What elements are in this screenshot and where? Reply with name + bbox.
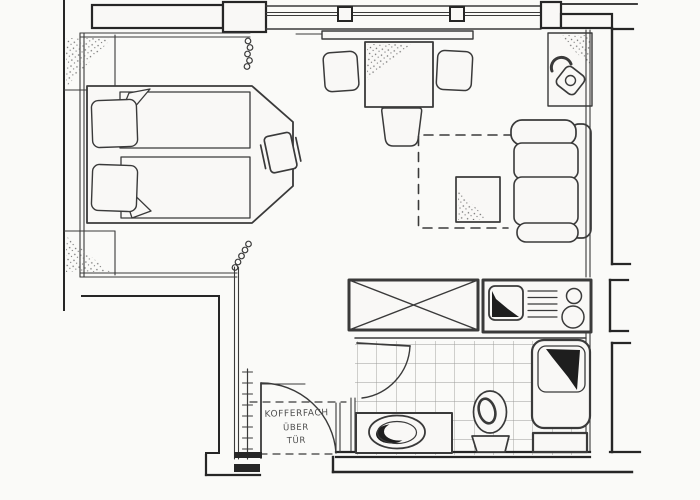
floor-plan: KOFFERFACH ÜBER TÜR [0,0,700,500]
stove-burner-large [562,306,584,328]
shower-mat [533,433,587,452]
door-label-line-3: TÜR [286,435,306,447]
bathroom [336,332,590,457]
pillow-bottom [91,164,138,212]
top-wall-band-right [561,14,612,28]
phone-shelf [548,33,592,106]
toilet [472,391,509,452]
window-post-1 [338,7,352,21]
sofa-cushion-2 [514,177,578,225]
washbasin-highlight [384,423,414,441]
chair-right [436,50,473,91]
shower [532,340,590,428]
entry-threshold-wall-1 [234,452,262,458]
top-wall-block-right [541,2,561,28]
toilet-cistern [472,436,509,452]
door-label-line-1: KOFFERFACH [264,408,328,420]
kitchenette [349,280,591,332]
door-label-line-2: ÜBER [283,422,309,434]
floor-plan-sheet: KOFFERFACH ÜBER TÜR [0,0,700,500]
sofa-armrest [511,120,576,145]
stove-burner-small [567,289,582,304]
pillow-top [91,99,138,148]
sofa-cushion-1 [514,143,578,179]
washbasin-vanity [356,413,452,453]
entry-threshold-wall-2 [234,464,260,472]
sofa [511,120,591,242]
window-post-2 [450,7,464,21]
top-wall-block-left [223,2,266,32]
chair-left [323,51,360,92]
chair-bottom [382,108,422,146]
top-wall-band-left [92,5,223,28]
curtain-rail [322,31,473,39]
double-bed [87,86,302,223]
sofa-front-edge [517,223,578,242]
